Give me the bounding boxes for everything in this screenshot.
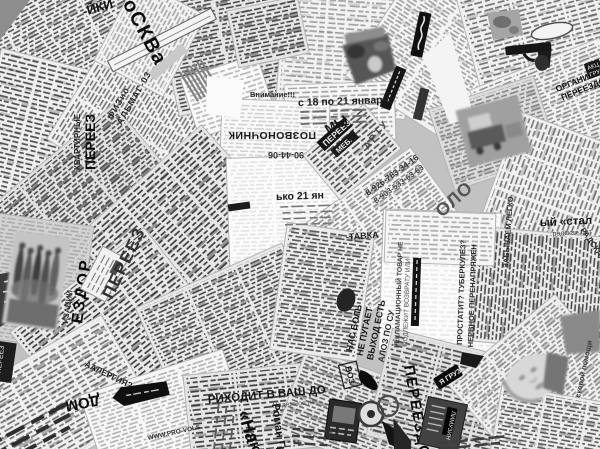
svg-text:ПЕРЕЕЗ: ПЕРЕЕЗ: [82, 114, 98, 170]
svg-text:ько 21 ян: ько 21 ян: [276, 189, 324, 203]
svg-text:90-44-06: 90-44-06: [268, 150, 304, 160]
svg-text:КВАРТИРНЫЕ: КВАРТИРНЫЕ: [73, 113, 82, 170]
svg-text:Внимание!!!: Внимание!!!: [250, 90, 295, 99]
svg-text:ПОЗВОНОЧНИК: ПОЗВОНОЧНИК: [228, 129, 316, 141]
